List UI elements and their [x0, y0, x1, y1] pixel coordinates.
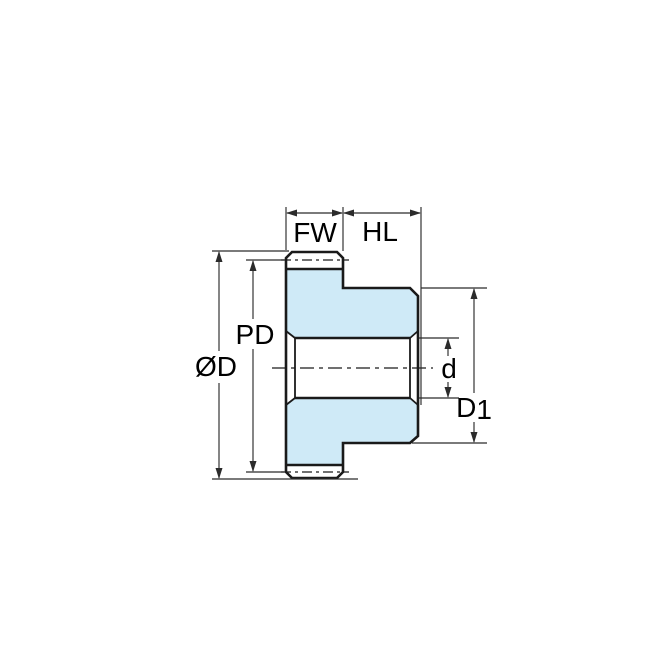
dim-arrow-left	[343, 210, 354, 217]
label-pitch-diameter: PD	[236, 319, 275, 350]
label-outside-diameter: ØD	[195, 351, 237, 382]
label-hub-diameter: D1	[456, 392, 492, 425]
dim-arrow-up	[216, 251, 223, 262]
dim-arrow-right	[332, 210, 343, 217]
dim-arrow-up	[471, 288, 478, 299]
dim-arrow-down	[445, 387, 452, 398]
dim-pitch-diameter: PD	[236, 260, 284, 472]
label-face-width: FW	[293, 217, 337, 248]
label-bore-diameter: d	[441, 353, 457, 384]
label-hub-diameter-subscript: 1	[476, 394, 492, 425]
gear-body-upper-section	[286, 269, 418, 338]
dim-arrow-up	[250, 260, 257, 271]
tooth-band-bottom	[286, 465, 343, 478]
drawing-canvas: FW HL ØD PD	[0, 0, 670, 670]
label-hub-diameter-main: D	[456, 392, 476, 423]
dim-arrow-up	[445, 338, 452, 349]
dim-arrow-down	[216, 468, 223, 479]
tooth-band-top	[286, 252, 343, 269]
label-hub-length: HL	[362, 216, 398, 247]
dim-arrow-right	[410, 210, 421, 217]
dim-arrow-left	[286, 210, 297, 217]
dim-arrow-down	[471, 432, 478, 443]
gear-drawing: FW HL ØD PD	[0, 0, 670, 670]
gear-body-lower-section	[286, 398, 418, 465]
dim-arrow-down	[250, 461, 257, 472]
